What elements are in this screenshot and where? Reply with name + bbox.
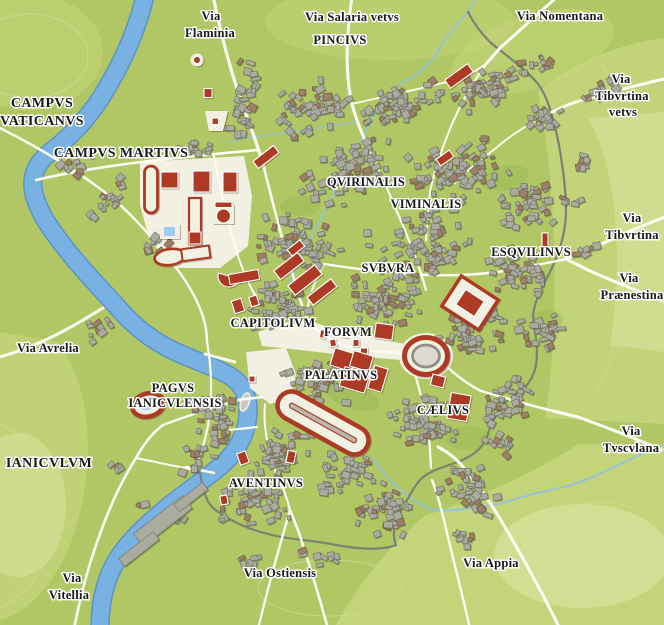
building — [218, 438, 226, 444]
building — [198, 419, 204, 423]
building — [499, 397, 505, 403]
building — [290, 381, 295, 386]
building — [279, 466, 286, 471]
temple-flaminia — [204, 89, 212, 98]
building — [386, 138, 391, 145]
pantheon-portico — [215, 202, 232, 208]
building — [291, 107, 296, 112]
building — [221, 430, 227, 438]
building — [234, 131, 241, 138]
building — [252, 498, 260, 503]
building — [415, 163, 421, 169]
building — [536, 122, 541, 126]
building — [372, 151, 376, 157]
building — [418, 243, 424, 248]
building — [191, 465, 197, 472]
label-pagvs-ianicvlensis-l1: PAGVS — [152, 381, 195, 395]
label-forvm: FORVM — [324, 325, 372, 339]
building — [264, 282, 269, 288]
building — [486, 81, 493, 85]
stadium-domitiani — [145, 166, 158, 213]
saepta-south-hall — [189, 232, 201, 244]
building — [214, 416, 218, 421]
building — [313, 552, 322, 560]
building — [212, 426, 218, 430]
building — [243, 67, 252, 75]
building — [313, 190, 318, 195]
label-via-tibvrtina-vetvs-l2: Tibvrtina — [595, 89, 649, 103]
building — [493, 398, 498, 403]
label-via-salaria-vetvs: Via Salaria vetvs — [305, 10, 399, 24]
building — [404, 408, 409, 414]
building — [514, 325, 524, 333]
building — [351, 144, 360, 149]
building — [406, 436, 412, 441]
forum-temple-2 — [329, 339, 336, 347]
building — [396, 111, 401, 117]
building — [466, 91, 473, 98]
label-via-vitellia-l2: Vitellia — [49, 588, 90, 602]
label-via-tibvrtina-l2: Tibvrtina — [605, 228, 659, 242]
building — [303, 307, 313, 315]
building — [363, 281, 368, 289]
building — [373, 304, 377, 310]
building — [237, 509, 241, 514]
building — [372, 297, 379, 303]
building — [352, 291, 359, 297]
building — [398, 319, 407, 326]
building — [495, 287, 501, 292]
label-ianicvlvm: IANICVLVM — [6, 456, 92, 471]
ara-pacis — [212, 118, 219, 125]
building — [501, 203, 508, 208]
stagnum-agrippae-pool — [164, 227, 175, 236]
building — [240, 98, 248, 102]
building — [305, 251, 310, 256]
building — [455, 222, 460, 229]
building — [518, 382, 524, 388]
building — [377, 90, 384, 97]
building — [316, 563, 323, 568]
label-via-tvscvlana-l1: Via — [621, 424, 641, 438]
building — [508, 275, 514, 280]
building — [521, 70, 527, 76]
building — [382, 285, 388, 289]
temple-aventine-2 — [286, 450, 296, 463]
building — [408, 504, 412, 509]
ludus-magnus — [430, 374, 445, 388]
building — [409, 224, 413, 229]
building — [241, 120, 247, 124]
building — [528, 115, 534, 121]
building — [311, 195, 320, 202]
building — [251, 88, 255, 93]
building — [371, 137, 376, 142]
label-pincivs: PINCIVS — [313, 33, 366, 47]
building — [498, 387, 506, 393]
building — [287, 515, 291, 520]
building — [432, 191, 436, 197]
building — [544, 198, 553, 205]
building — [387, 93, 392, 99]
building — [280, 217, 288, 224]
building — [533, 194, 541, 199]
label-esqvilinvs: ESQVILINVS — [491, 245, 571, 259]
building — [393, 321, 397, 326]
building — [526, 341, 531, 346]
map-canvas: ViaFlaminiaVia Salaria vetvsPINCIVSVia N… — [0, 0, 664, 625]
building — [265, 296, 270, 303]
building — [530, 205, 537, 209]
building — [438, 261, 444, 265]
building — [316, 392, 320, 396]
building — [486, 407, 492, 414]
building — [289, 219, 295, 226]
building — [417, 310, 421, 314]
temple-transtiberim — [249, 376, 255, 382]
building — [508, 390, 516, 394]
building — [489, 346, 496, 352]
building — [364, 461, 371, 464]
building — [398, 98, 405, 105]
building — [452, 325, 457, 330]
building — [445, 426, 450, 432]
label-via-praenestina-l1: Via — [619, 271, 639, 285]
building — [417, 175, 425, 181]
label-campvs-vaticanvs-l1: CAMPVS — [11, 96, 73, 111]
building — [327, 123, 333, 130]
building — [518, 205, 522, 210]
building — [362, 148, 369, 156]
building — [419, 213, 423, 218]
building — [541, 324, 548, 328]
building — [532, 340, 539, 346]
building — [580, 165, 586, 172]
building — [406, 278, 413, 284]
label-via-appia: Via Appia — [463, 556, 519, 570]
building — [341, 154, 346, 159]
building — [227, 125, 235, 130]
building — [413, 435, 420, 442]
building — [521, 183, 527, 188]
terrain-southeast-core — [494, 504, 664, 608]
building — [448, 162, 453, 169]
building — [448, 250, 457, 257]
building — [368, 158, 375, 162]
label-via-praenestina-l2: Prænestina — [601, 288, 664, 302]
building — [477, 160, 484, 165]
building — [300, 434, 309, 439]
building — [384, 521, 393, 528]
templum-pacis — [374, 323, 394, 340]
building — [481, 136, 489, 142]
label-via-flaminia-l1: Via — [201, 9, 221, 23]
building — [383, 166, 388, 172]
building — [205, 412, 213, 419]
building — [466, 109, 472, 115]
building — [464, 544, 470, 550]
building — [511, 284, 518, 289]
label-via-flaminia-l2: Flaminia — [185, 26, 235, 40]
building — [467, 483, 474, 487]
building — [409, 299, 414, 304]
building — [517, 389, 523, 394]
building — [372, 509, 377, 514]
building — [415, 258, 421, 265]
building — [414, 105, 420, 111]
label-capitolivm: CAPITOLIVM — [231, 316, 316, 330]
label-qvirinalis: QVIRINALIS — [327, 175, 405, 189]
label-aventinvs: AVENTINVS — [229, 476, 303, 490]
building — [341, 203, 346, 207]
building — [299, 89, 305, 95]
mausoleum-augusti — [193, 56, 200, 63]
building — [274, 511, 281, 519]
building — [352, 150, 359, 157]
building — [327, 106, 334, 113]
label-via-ostiensis: Via Ostiensis — [244, 566, 317, 580]
building — [257, 468, 264, 476]
building — [528, 216, 536, 222]
building — [251, 556, 258, 561]
building — [363, 291, 370, 296]
building — [364, 505, 368, 509]
building — [291, 309, 295, 313]
building — [366, 243, 373, 247]
building — [318, 76, 323, 83]
building — [506, 215, 513, 221]
building — [331, 466, 336, 470]
building — [423, 434, 431, 439]
building — [337, 248, 344, 252]
building — [371, 479, 376, 484]
building — [428, 423, 436, 429]
building — [257, 234, 264, 238]
building — [252, 309, 259, 313]
building — [465, 468, 471, 475]
label-campvs-martivs: CAMPVS MARTIVS — [54, 146, 189, 161]
building — [275, 291, 279, 298]
building — [571, 201, 579, 207]
forum-temple-4 — [353, 340, 359, 347]
temple-aventine-3 — [220, 495, 228, 505]
building — [473, 474, 480, 481]
building — [276, 470, 281, 476]
building — [533, 62, 537, 66]
building — [363, 229, 371, 236]
building — [220, 507, 224, 512]
label-viminalis: VIMINALIS — [390, 197, 461, 211]
building — [452, 158, 459, 165]
label-via-tibvrtina-vetvs-l3: vetvs — [609, 105, 637, 119]
building — [115, 468, 120, 473]
building — [521, 284, 526, 289]
building — [279, 297, 286, 304]
building — [493, 493, 502, 500]
label-pagvs-ianicvlensis-l2: IANICVLENSIS — [128, 396, 221, 410]
building — [395, 498, 403, 505]
theatrum-block-2 — [223, 172, 237, 192]
building — [390, 502, 397, 507]
label-caelivs: CÆLIVS — [417, 403, 469, 417]
building — [259, 300, 264, 306]
building — [465, 329, 470, 335]
building — [313, 383, 317, 390]
theatrum-block-1 — [193, 171, 210, 192]
building — [498, 339, 503, 342]
building — [529, 61, 533, 68]
building — [194, 451, 200, 458]
pantheon-rotunda — [217, 209, 231, 223]
building — [540, 56, 544, 59]
label-palatinvs: PALATINVS — [305, 368, 378, 382]
label-via-vitellia-l1: Via — [62, 571, 82, 585]
building — [398, 243, 402, 246]
building — [512, 224, 519, 231]
building — [342, 399, 351, 406]
building — [98, 203, 103, 209]
building — [306, 450, 310, 456]
building — [400, 426, 405, 431]
building — [394, 416, 398, 420]
building — [210, 455, 218, 459]
building — [323, 93, 332, 101]
building — [336, 112, 343, 117]
building — [592, 242, 601, 250]
label-via-tibvrtina-l1: Via — [622, 211, 642, 225]
label-via-avrelia: Via Avrelia — [17, 341, 79, 355]
label-via-nomentana: Via Nomentana — [517, 9, 604, 23]
building — [286, 213, 290, 217]
building — [357, 157, 364, 164]
building — [419, 92, 425, 99]
building — [468, 348, 477, 352]
building — [384, 296, 387, 303]
label-via-tvscvlana-l2: Tvscvlana — [603, 441, 660, 455]
building — [476, 481, 482, 487]
building — [530, 322, 539, 328]
building — [516, 60, 526, 66]
building — [210, 430, 218, 436]
building — [424, 82, 431, 87]
building — [272, 445, 281, 454]
building — [431, 241, 436, 246]
building — [339, 481, 343, 485]
baths-nero — [161, 172, 178, 188]
building — [419, 225, 422, 229]
building — [470, 99, 475, 106]
building — [538, 110, 544, 117]
building — [334, 384, 339, 391]
building — [111, 195, 115, 199]
building — [546, 123, 554, 130]
building — [496, 406, 501, 411]
building — [359, 298, 365, 304]
building — [284, 104, 289, 110]
building — [410, 424, 417, 430]
building — [499, 319, 507, 324]
building — [517, 271, 522, 276]
building — [540, 282, 544, 286]
building — [467, 238, 472, 244]
building — [557, 327, 566, 331]
building — [257, 244, 261, 248]
building — [392, 287, 396, 291]
building — [493, 437, 500, 444]
building — [476, 189, 480, 193]
building — [320, 156, 327, 162]
building — [431, 224, 440, 230]
colosseum-inner — [413, 345, 440, 367]
building — [195, 150, 202, 157]
building — [377, 498, 385, 506]
building — [407, 244, 411, 250]
building — [583, 157, 590, 164]
building — [228, 397, 236, 405]
rome-antique-map: ViaFlaminiaVia Salaria vetvsPINCIVSVia N… — [0, 0, 664, 625]
building — [468, 537, 473, 542]
building — [535, 329, 541, 334]
building — [89, 334, 93, 337]
porticus-pompeii — [181, 245, 210, 261]
label-campvs-vaticanvs-l2: VATICANVS — [0, 114, 84, 129]
building — [319, 489, 328, 497]
label-svbvra: SVBVRA — [362, 261, 415, 275]
building — [196, 428, 202, 434]
building — [407, 286, 416, 291]
building — [326, 463, 330, 469]
building — [458, 337, 463, 341]
building — [288, 441, 294, 448]
label-via-tibvrtina-vetvs-l1: Via — [611, 72, 631, 86]
building — [77, 169, 83, 174]
building — [326, 474, 334, 478]
